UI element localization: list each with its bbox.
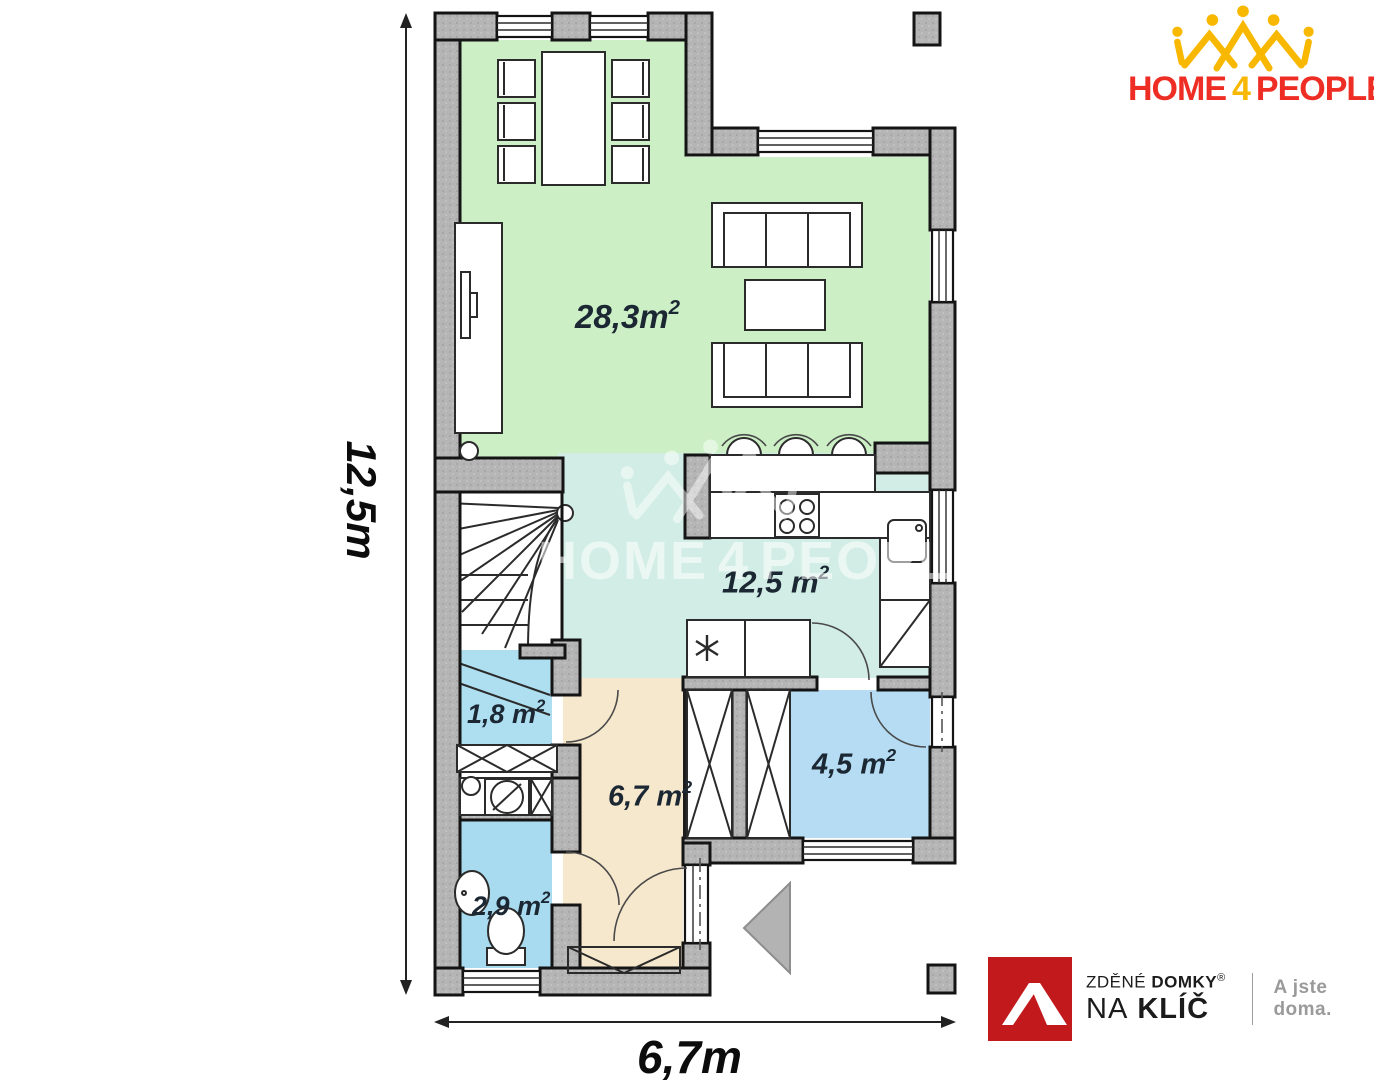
- floor-plan-page: 28,3m2 12,5 m2 1,8 m2 6,7 m2 4,5 m2 2,9 …: [0, 0, 1374, 1080]
- closet: [687, 690, 732, 838]
- window: [497, 16, 552, 37]
- window: [590, 16, 648, 37]
- flue: [460, 442, 478, 460]
- room-label-kitchen: 12,5 m2: [722, 566, 829, 597]
- dimension-arrow-vertical: [400, 13, 412, 995]
- window: [463, 971, 540, 992]
- partner-tagline: A jste doma.: [1273, 977, 1374, 1021]
- partner-logo: ZDĚNÉ DOMKY® NA KLÍČ A jste doma.: [988, 957, 1374, 1041]
- room-label-bathroom: 4,5 m2: [812, 748, 896, 780]
- window: [932, 490, 953, 583]
- brand-wordmark: HOME4PEOPLE: [1128, 70, 1358, 109]
- dining-table: [542, 52, 605, 185]
- room-label-wc: 2,9 m2: [472, 892, 550, 920]
- room-label-storage: 1,8 m2: [467, 700, 545, 728]
- dimension-label-height: 12,5m: [335, 430, 385, 570]
- room-label-hall: 6,7 m2: [608, 780, 692, 812]
- entrance-door: [685, 858, 708, 950]
- crown-icon: [1163, 4, 1323, 74]
- window: [758, 131, 873, 152]
- roof-icon: [988, 957, 1072, 1041]
- home4people-logo: HOME4PEOPLE: [1128, 4, 1358, 109]
- flue: [462, 777, 480, 795]
- fridge-icon: [880, 600, 930, 667]
- dishwasher-counter: [687, 620, 810, 677]
- bar-stools: [722, 435, 871, 455]
- closet: [747, 690, 790, 838]
- coffee-table: [745, 280, 825, 330]
- shaft-strip: [457, 745, 557, 772]
- stove-icon: [775, 494, 819, 537]
- entrance-arrow: [744, 883, 790, 973]
- floor-plan-svg: [0, 0, 1374, 1080]
- sink-icon: [888, 520, 926, 562]
- room-label-living: 28,3m2: [575, 300, 680, 333]
- sofa: [712, 203, 862, 267]
- window: [932, 230, 953, 302]
- pillar-bottom-right: [928, 965, 955, 993]
- bar-counter: [710, 455, 875, 492]
- dimension-label-width: 6,7m: [637, 1030, 742, 1080]
- sofa: [712, 343, 862, 407]
- tv-cabinet: [455, 223, 502, 433]
- pillar-top-right: [914, 13, 940, 45]
- partner-wordmark: ZDĚNÉ DOMKY® NA KLÍČ: [1086, 972, 1226, 1027]
- terrace-door: [932, 692, 953, 752]
- window: [803, 841, 913, 860]
- divider: [1252, 973, 1254, 1025]
- dimension-arrow-horizontal: [434, 1016, 956, 1028]
- stair-newel-post: [557, 505, 573, 521]
